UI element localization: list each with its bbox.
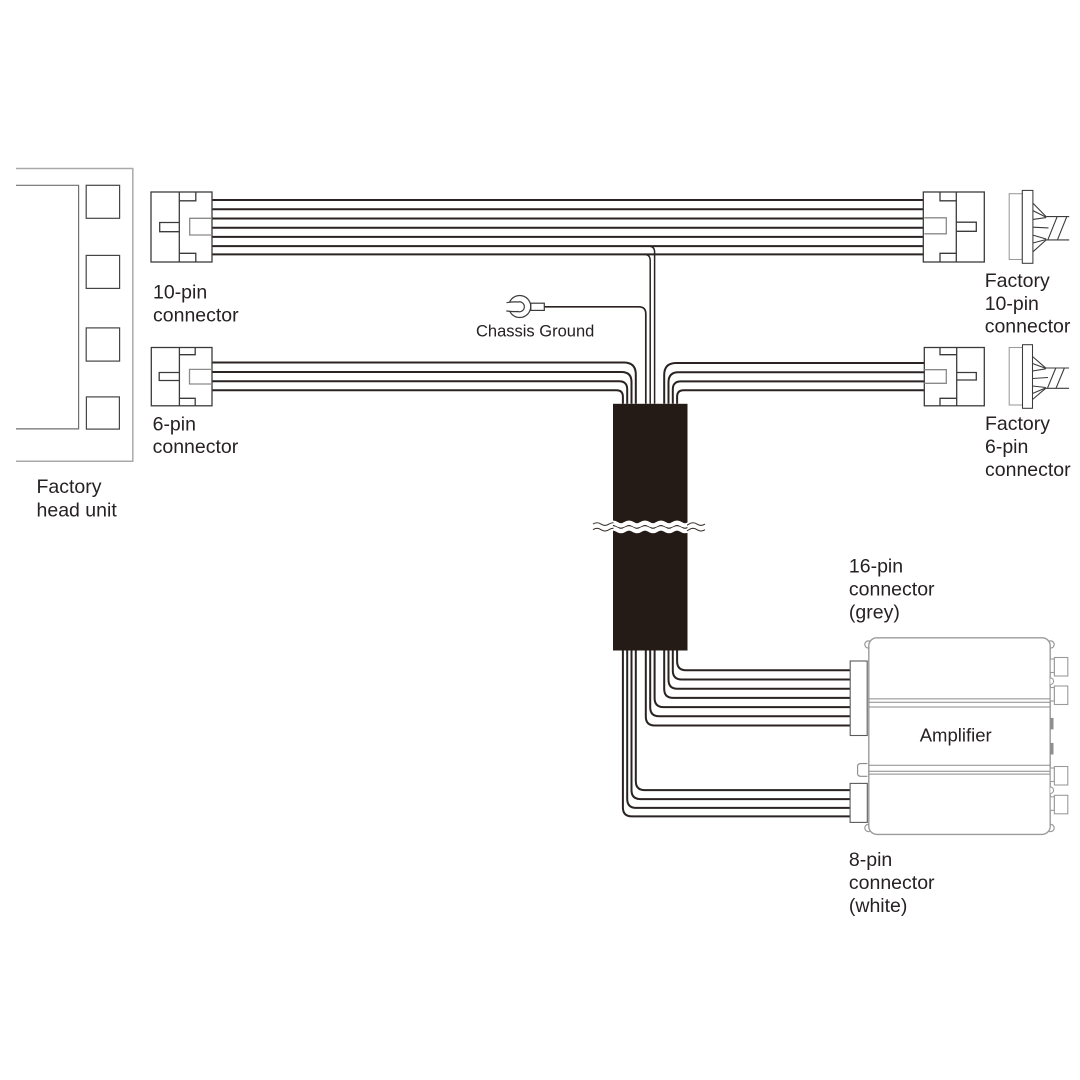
svg-text:8-pin: 8-pin — [849, 849, 892, 871]
svg-text:Amplifier: Amplifier — [920, 724, 992, 745]
svg-text:6-pin: 6-pin — [153, 413, 196, 435]
svg-text:6-pin: 6-pin — [985, 436, 1028, 458]
svg-text:(white): (white) — [849, 895, 908, 917]
svg-text:10-pin: 10-pin — [153, 282, 207, 304]
svg-text:Factory: Factory — [985, 413, 1050, 435]
svg-text:Factory: Factory — [985, 270, 1050, 292]
svg-text:Chassis Ground: Chassis Ground — [476, 322, 594, 340]
svg-text:10-pin: 10-pin — [985, 293, 1039, 315]
svg-text:connector: connector — [985, 459, 1071, 481]
svg-text:connector: connector — [849, 872, 935, 894]
svg-text:16-pin: 16-pin — [849, 556, 903, 578]
svg-text:connector: connector — [849, 579, 935, 601]
svg-text:(grey): (grey) — [849, 602, 900, 624]
svg-text:connector: connector — [153, 436, 239, 458]
svg-text:Factory: Factory — [37, 476, 102, 498]
svg-text:head unit: head unit — [37, 500, 118, 522]
svg-text:connector: connector — [985, 316, 1071, 338]
svg-text:connector: connector — [153, 304, 239, 326]
